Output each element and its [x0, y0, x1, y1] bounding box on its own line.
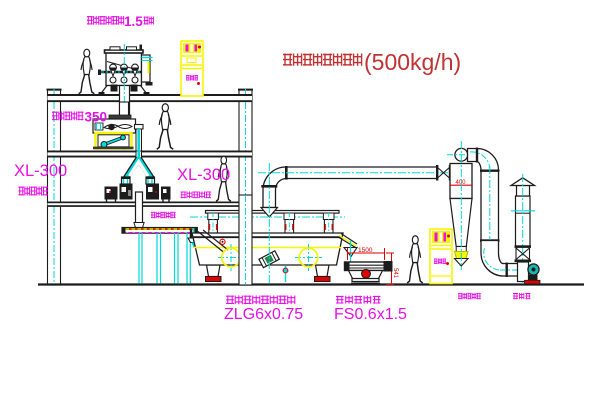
- svg-text:XL-300: XL-300: [177, 166, 230, 184]
- svg-text:ZLG6x0.75: ZLG6x0.75: [224, 306, 303, 323]
- svg-text:(500kg/h): (500kg/h): [364, 49, 461, 75]
- svg-text:XL-300: XL-300: [14, 162, 67, 180]
- svg-text:350: 350: [85, 110, 108, 125]
- svg-text:FS0.6x1.5: FS0.6x1.5: [334, 306, 407, 323]
- svg-text:541: 541: [392, 268, 398, 279]
- svg-text:1.5: 1.5: [124, 14, 143, 29]
- svg-text:1500: 1500: [358, 247, 373, 254]
